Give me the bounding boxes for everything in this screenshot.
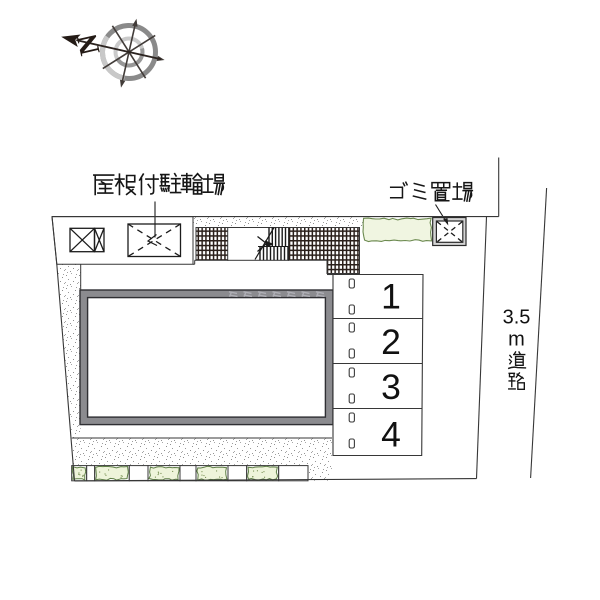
svg-text:m: m bbox=[508, 329, 525, 351]
svg-text:3.5: 3.5 bbox=[503, 307, 531, 329]
svg-text:1: 1 bbox=[381, 277, 401, 317]
svg-text:2: 2 bbox=[381, 322, 401, 362]
svg-text:4: 4 bbox=[381, 415, 401, 455]
svg-text:3: 3 bbox=[381, 367, 401, 407]
